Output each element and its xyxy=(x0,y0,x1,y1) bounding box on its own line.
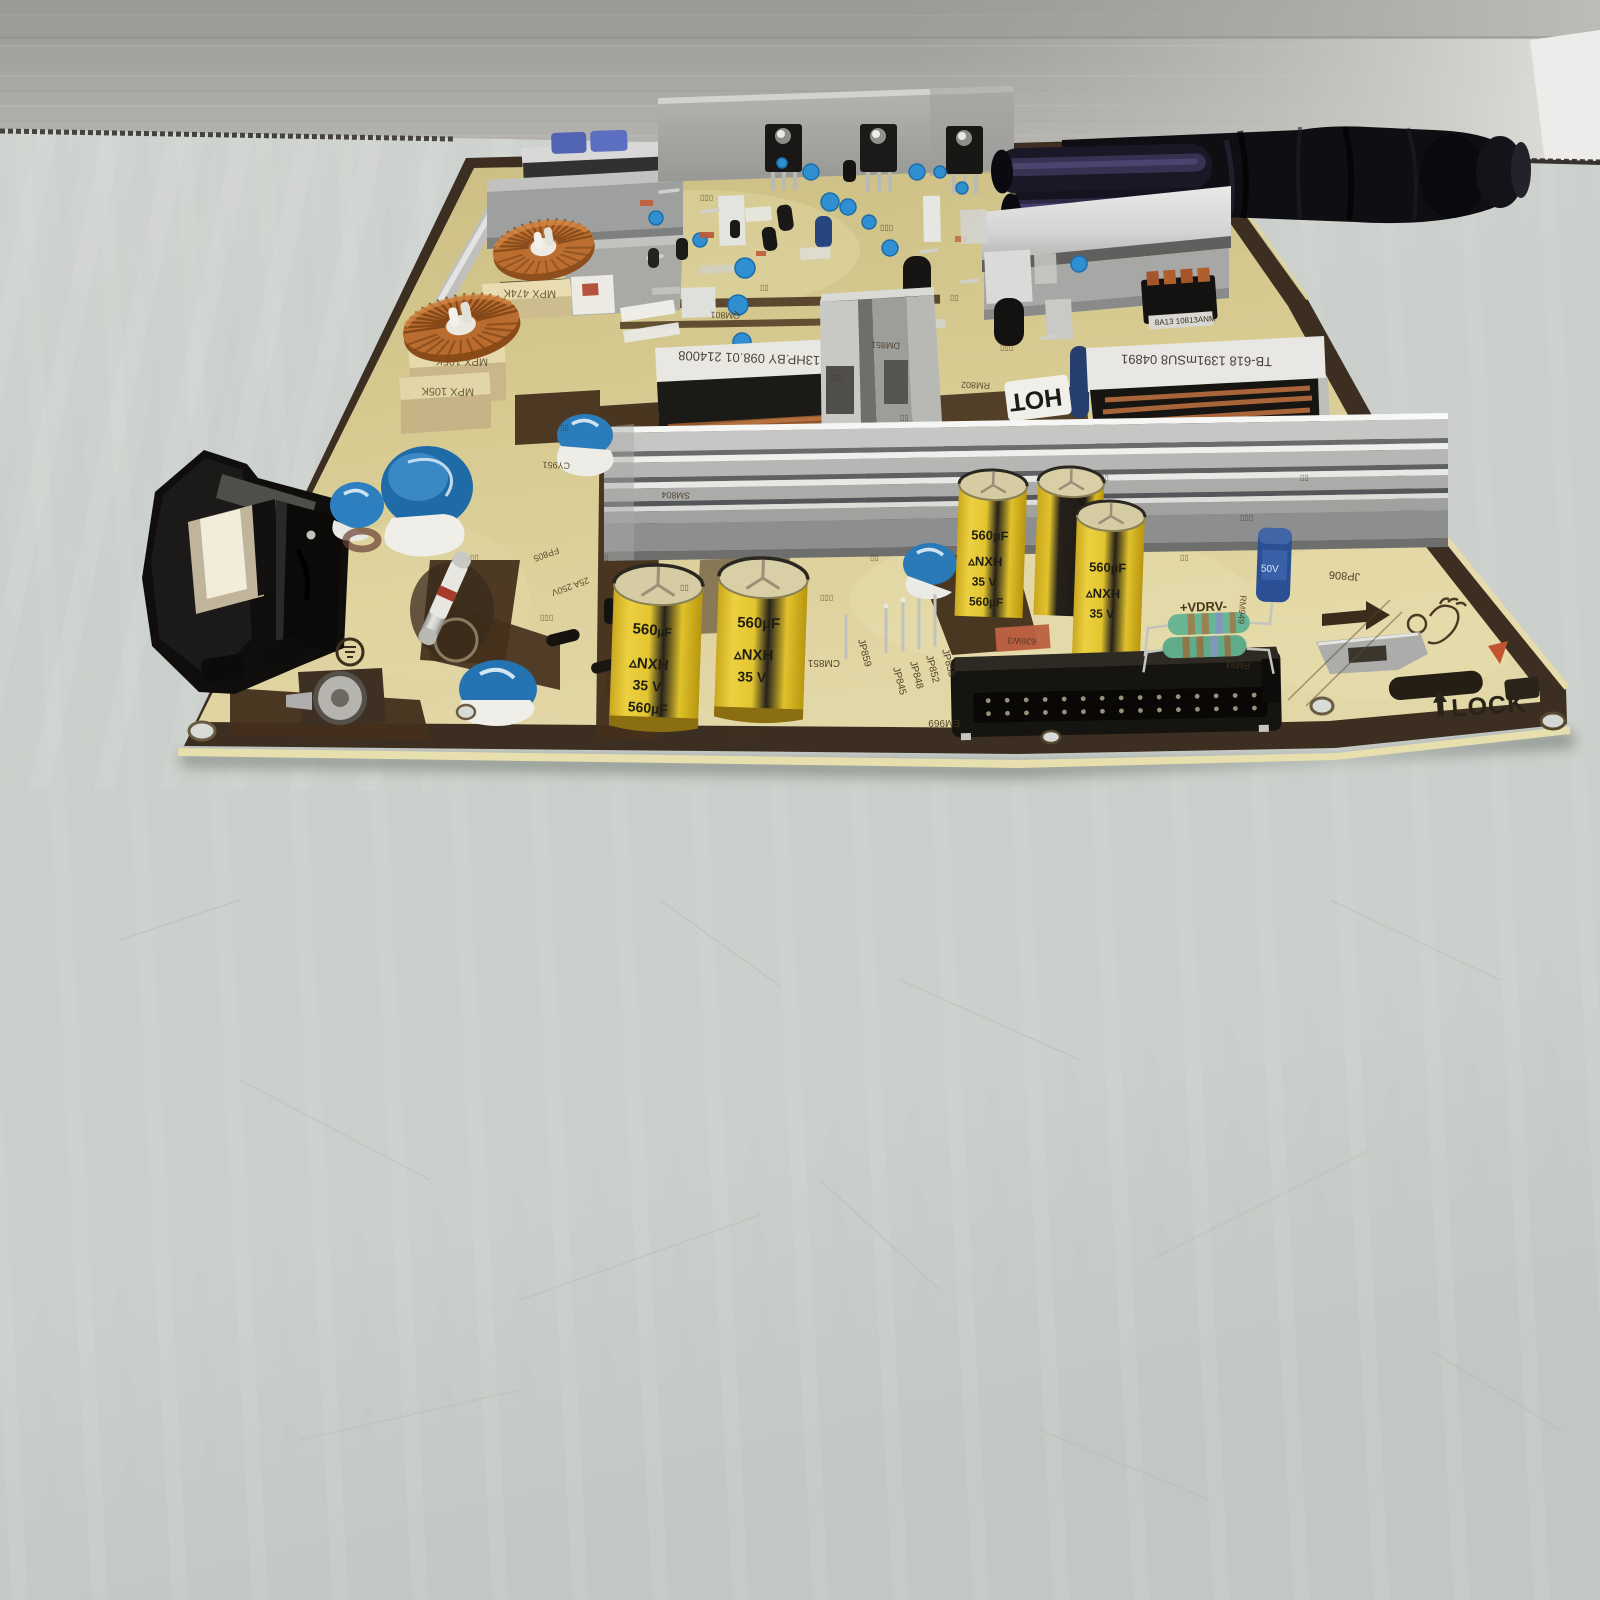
svg-text:RM93: RM93 xyxy=(1226,660,1250,671)
svg-text:TB-618 1391mSU8 04891: TB-618 1391mSU8 04891 xyxy=(1121,352,1272,370)
svg-text:JP806: JP806 xyxy=(1329,568,1361,582)
svg-text:560µF: 560µF xyxy=(737,614,780,632)
svg-text:▯▯▯: ▯▯▯ xyxy=(880,223,893,232)
svg-text:▯▯▯: ▯▯▯ xyxy=(700,193,713,202)
svg-text:▯▯: ▯▯ xyxy=(1300,473,1309,482)
svg-text:▯▯: ▯▯ xyxy=(470,553,479,562)
svg-text:▯▯: ▯▯ xyxy=(870,553,879,562)
svg-text:▵NXH: ▵NXH xyxy=(733,646,774,664)
svg-text:▯▯: ▯▯ xyxy=(1100,473,1109,482)
svg-text:35 V: 35 V xyxy=(971,574,996,589)
svg-text:+VDRV-: +VDRV- xyxy=(1180,598,1228,615)
svg-text:35 V: 35 V xyxy=(737,668,767,685)
svg-text:35 V: 35 V xyxy=(1089,606,1114,621)
svg-text:EM969: EM969 xyxy=(928,717,960,728)
svg-text:▵NXH: ▵NXH xyxy=(628,654,670,674)
svg-text:▯▯▯: ▯▯▯ xyxy=(1240,513,1253,522)
svg-text:LOCK: LOCK xyxy=(1451,689,1528,722)
svg-text:▯▯: ▯▯ xyxy=(560,423,569,432)
svg-text:▯▯: ▯▯ xyxy=(680,583,689,592)
svg-text:MPX 105K: MPX 105K xyxy=(421,385,474,398)
svg-text:▯▯: ▯▯ xyxy=(600,553,609,562)
svg-text:▯▯: ▯▯ xyxy=(1180,553,1189,562)
svg-text:35 V: 35 V xyxy=(632,676,663,695)
svg-text:CY951: CY951 xyxy=(542,460,570,471)
svg-text:636W3: 636W3 xyxy=(1007,636,1036,647)
svg-text:560µF: 560µF xyxy=(969,594,1004,609)
svg-text:▯▯: ▯▯ xyxy=(760,283,769,292)
svg-text:▯▯▯: ▯▯▯ xyxy=(830,373,843,382)
svg-text:▵NXH: ▵NXH xyxy=(1085,585,1120,601)
svg-text:▯▯▯: ▯▯▯ xyxy=(820,593,833,602)
svg-text:EM969: EM969 xyxy=(631,730,660,741)
svg-text:▯▯▯: ▯▯▯ xyxy=(540,613,553,622)
svg-text:▯▯: ▯▯ xyxy=(900,413,909,422)
svg-text:DB850: DB850 xyxy=(729,727,760,738)
svg-text:▯▯: ▯▯ xyxy=(950,293,959,302)
svg-text:CM851: CM851 xyxy=(807,657,840,668)
svg-text:SM804: SM804 xyxy=(661,490,690,501)
svg-text:DM851: DM851 xyxy=(871,340,900,351)
svg-text:▯▯▯: ▯▯▯ xyxy=(1000,343,1013,352)
svg-text:MPX 474K: MPX 474K xyxy=(503,287,556,300)
svg-text:560µF: 560µF xyxy=(1089,559,1127,575)
svg-text:QM801: QM801 xyxy=(710,310,740,321)
svg-text:RM802: RM802 xyxy=(961,380,990,391)
svg-text:560µF: 560µF xyxy=(971,527,1009,543)
svg-text:LM855: LM855 xyxy=(632,410,660,421)
svg-text:▵NXH: ▵NXH xyxy=(967,553,1002,569)
svg-text:50V: 50V xyxy=(1261,564,1279,576)
